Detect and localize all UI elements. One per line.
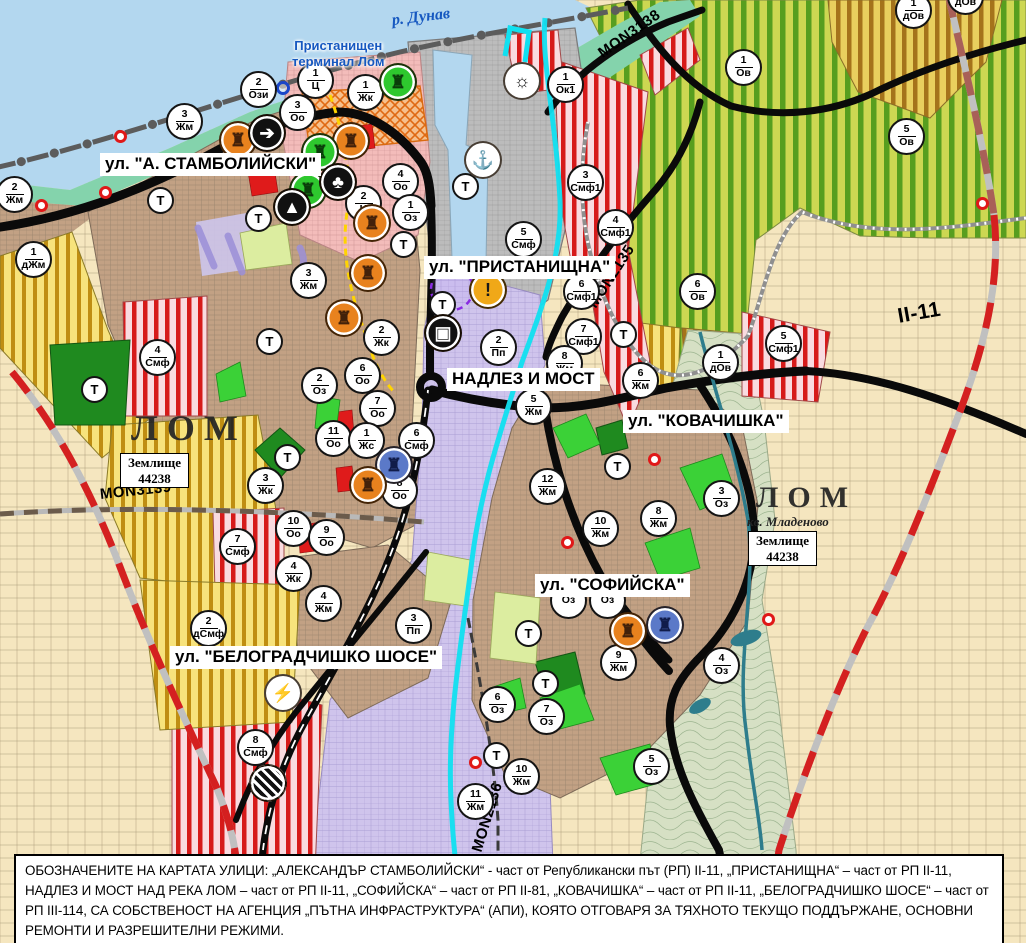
zone-number: 1 xyxy=(402,200,420,213)
zone-number: 1 xyxy=(358,428,376,441)
zone-number: 7 xyxy=(229,534,247,547)
zone-number: 11 xyxy=(466,789,485,802)
caption-segment: „КОВАЧИШКА“ xyxy=(553,883,643,898)
zone-code: Оо xyxy=(286,529,301,541)
zone-code: Смф1 xyxy=(600,228,630,240)
zone-number: 3 xyxy=(405,613,423,626)
zone-marker: 12 Жм xyxy=(529,468,566,505)
zone-number: 2 xyxy=(373,325,391,338)
zone-code: дЖм xyxy=(22,260,46,272)
caption-segment: „ПРИСТАНИЩНА“ xyxy=(727,863,839,878)
zone-marker: 2 Оз xyxy=(301,367,338,404)
zone-number: 2 xyxy=(200,616,218,629)
zone-marker: 7 Оз xyxy=(528,698,565,735)
street-label: ул. "БЕЛОГРАДЧИШКО ШОСЕ" xyxy=(170,646,442,669)
caption-segment: – част от РП II-11, xyxy=(236,883,352,898)
zone-code: Жк xyxy=(258,486,273,498)
transport-zone-marker: Т xyxy=(245,205,272,232)
zone-number: 1 xyxy=(905,0,923,11)
key-site-icon: ➔ xyxy=(248,114,286,152)
zone-marker: 10 Жм xyxy=(503,758,540,795)
zone-marker: 8 Жм xyxy=(640,500,677,537)
sun-site-icon: ☼ xyxy=(503,62,541,100)
monument-icon: ♜ xyxy=(349,254,387,292)
zone-number: 6 xyxy=(689,279,707,292)
zone-number: 9 xyxy=(318,525,336,538)
zone-number: 5 xyxy=(898,124,916,137)
zone-code: Жс xyxy=(359,441,374,453)
monument-icon: ♜ xyxy=(349,466,387,504)
transport-zone-marker: Т xyxy=(390,231,417,258)
zone-code: Жм xyxy=(6,195,23,207)
zone-code: Пп xyxy=(407,626,421,638)
zone-number: 4 xyxy=(149,345,167,358)
zone-code: Смф1 xyxy=(768,344,798,356)
zone-code: Оз xyxy=(313,386,326,398)
zone-marker: 1 Ов xyxy=(725,49,762,86)
zone-code: Ов xyxy=(899,137,914,149)
zone-marker: 1 Ок1 xyxy=(547,66,584,103)
zone-marker: 3 Жм xyxy=(290,262,327,299)
zone-marker: 6 Ов xyxy=(679,273,716,310)
transport-zone-marker: Т xyxy=(610,321,637,348)
road-point xyxy=(35,199,48,212)
zone-code: Ози xyxy=(249,90,269,102)
zone-number: 4 xyxy=(713,653,731,666)
zone-code: Ок1 xyxy=(556,85,575,97)
transport-zone-marker: Т xyxy=(256,328,283,355)
caption-segment: ОБОЗНАЧЕНИТЕ НА КАРТАТА УЛИЦИ: „АЛЕКСАНД… xyxy=(25,863,484,878)
caption-segment: „СОФИЙСКА“ xyxy=(353,883,437,898)
monument-icon: ♜ xyxy=(353,204,391,242)
monument-icon: ♜ xyxy=(646,606,684,644)
zone-marker: 10 Жм xyxy=(582,510,619,547)
zone-marker: 4 Жк xyxy=(275,555,312,592)
monument-icon: ♜ xyxy=(379,63,417,101)
zone-code: Ов xyxy=(736,68,751,80)
transport-zone-marker: Т xyxy=(515,620,542,647)
zone-code: Оз xyxy=(404,213,417,225)
zone-code: Жм xyxy=(467,802,484,814)
zone-code: Жк xyxy=(374,338,389,350)
zone-marker: 3 Смф1 xyxy=(567,164,604,201)
zoning-map[interactable]: р. ДунавПристанищен терминал Ломул. "А. … xyxy=(0,0,1026,943)
reference-point xyxy=(276,81,290,95)
road-point xyxy=(561,536,574,549)
zone-number: 8 xyxy=(650,506,668,519)
zone-number: 4 xyxy=(392,169,410,182)
zone-number: 6 xyxy=(489,692,507,705)
truck-terminal-icon: ▣ xyxy=(424,314,462,352)
zone-marker: 4 Смф1 xyxy=(597,209,634,246)
zone-number: 3 xyxy=(289,100,307,113)
monument-icon: ♜ xyxy=(325,299,363,337)
zone-marker: 6 Смф1 xyxy=(563,273,600,310)
zone-number: 5 xyxy=(515,227,533,240)
caption-segment: НАДЛЕЗ И МОСТ НАД РЕКА ЛОМ xyxy=(25,883,236,898)
zone-number: 2 xyxy=(490,335,508,348)
zone-marker: 5 Смф1 xyxy=(765,325,802,362)
zone-marker: 1 дОв xyxy=(702,344,739,381)
zone-marker: 10 Оо xyxy=(275,510,312,547)
zone-marker: 1 дЖм xyxy=(15,241,52,278)
zone-number: 10 xyxy=(591,516,611,529)
transport-zone-marker: Т xyxy=(532,670,559,697)
zone-number: 1 xyxy=(557,72,575,85)
zone-code: Смф xyxy=(243,748,267,760)
zone-marker: 2 Ози xyxy=(240,71,277,108)
caption-segment: „БЕЛОГРАДЧИШКО ШОСЕ“ xyxy=(760,883,931,898)
street-label: НАДЛЕЗ И МОСТ xyxy=(447,368,600,391)
zone-marker: 4 Жм xyxy=(305,585,342,622)
zone-number: 11 xyxy=(324,426,343,439)
zone-number: 2 xyxy=(6,182,24,195)
zone-code: Жм xyxy=(632,381,649,393)
caption-segment: - част от Републикански път (РП) II-11, xyxy=(484,863,727,878)
zone-code: Ц xyxy=(312,81,320,93)
port-terminal-label: Пристанищен терминал Лом xyxy=(292,38,384,69)
zone-marker: 5 Жм xyxy=(515,388,552,425)
zone-marker: 1 Оз xyxy=(392,194,429,231)
transport-zone-marker: Т xyxy=(274,444,301,471)
zone-marker: 3 Оз xyxy=(703,480,740,517)
zone-code: дСмф xyxy=(193,629,224,641)
zone-marker: 9 Оо xyxy=(308,519,345,556)
zone-marker: 5 Смф xyxy=(505,221,542,258)
people-site-icon: ♣ xyxy=(319,163,357,201)
zone-marker: 2 дСмф xyxy=(190,610,227,647)
zone-code: Оз xyxy=(562,595,575,607)
zone-number: 8 xyxy=(556,351,574,364)
zone-marker: 6 Жм xyxy=(622,362,659,399)
zone-number: 4 xyxy=(607,215,625,228)
zone-number: 6 xyxy=(632,368,650,381)
street-label: ул. "А. СТАМБОЛИЙСКИ" xyxy=(100,153,321,176)
zone-number: 6 xyxy=(408,428,426,441)
zone-code: Смф xyxy=(225,547,249,559)
transport-zone-marker: Т xyxy=(147,187,174,214)
caption-segment: – част от РП II-11, xyxy=(839,863,952,878)
zone-number: 3 xyxy=(300,268,318,281)
zone-marker: 2 Жк xyxy=(363,319,400,356)
zone-code: Жм xyxy=(176,122,193,134)
zone-code: Жм xyxy=(650,519,667,531)
zone-code: Оо xyxy=(393,182,408,194)
road-point xyxy=(762,613,775,626)
zone-code: Оз xyxy=(540,717,553,729)
street-label: ул. "ПРИСТАНИЩНА" xyxy=(424,256,615,279)
district-label: кв. Младеново xyxy=(747,515,829,530)
caption-segment: СА СОБСТВЕНОСТ НА АГЕНЦИЯ „ПЪТНА ИНФРАСТ… xyxy=(25,903,973,938)
zone-code: Жм xyxy=(539,487,556,499)
zone-code: Оо xyxy=(392,491,407,503)
zone-number: 12 xyxy=(538,474,558,487)
zone-code: Жк xyxy=(286,574,301,586)
zone-number: 3 xyxy=(176,109,194,122)
zone-number: 4 xyxy=(315,591,333,604)
zone-code: Оо xyxy=(319,538,334,550)
zone-code: Оз xyxy=(715,499,728,511)
zone-number: 6 xyxy=(573,279,591,292)
zone-number: 2 xyxy=(311,373,329,386)
city-label: ЛОМ xyxy=(131,408,247,449)
map-caption: ОБОЗНАЧЕНИТЕ НА КАРТАТА УЛИЦИ: „АЛЕКСАНД… xyxy=(14,854,1004,943)
zone-code: Смф xyxy=(511,240,535,252)
zone-number: 5 xyxy=(525,394,543,407)
cave-site-icon: ▲ xyxy=(273,188,311,226)
road-point xyxy=(469,756,482,769)
zone-marker: 11 Оо xyxy=(315,420,352,457)
road-point xyxy=(114,130,127,143)
zone-number: 1 xyxy=(735,55,753,68)
landplot-label: Землище 44238 xyxy=(748,531,817,566)
zone-marker: 6 Оо xyxy=(344,357,381,394)
zone-number: 2 xyxy=(250,77,268,90)
zone-code: Жк xyxy=(358,93,373,105)
zone-number: 7 xyxy=(369,396,387,409)
railway-crossing-icon xyxy=(249,764,287,802)
zone-code: Оз xyxy=(715,666,728,678)
zone-code: Жм xyxy=(525,407,542,419)
zone-number: 1 xyxy=(712,350,730,363)
zone-marker: 4 Смф xyxy=(139,339,176,376)
zone-number: 1 xyxy=(25,247,43,260)
anchor-port-icon: ⚓ xyxy=(464,141,502,179)
zone-marker: 2 Пп xyxy=(480,329,517,366)
zone-code: Жм xyxy=(513,777,530,789)
transport-zone-marker: Т xyxy=(604,453,631,480)
transport-zone-marker: Т xyxy=(483,742,510,769)
zone-number: 4 xyxy=(285,561,303,574)
lightning-icon: ⚡ xyxy=(264,674,302,712)
zone-code: Жм xyxy=(300,281,317,293)
zone-number: 6 xyxy=(354,363,372,376)
caption-segment: – част от РП II-11, xyxy=(643,883,759,898)
zone-code: Жм xyxy=(592,529,609,541)
zone-marker: 6 Оз xyxy=(479,686,516,723)
zone-code: Жм xyxy=(315,604,332,616)
zone-code: Оо xyxy=(326,439,341,451)
zone-code: Смф1 xyxy=(570,183,600,195)
zone-number: 7 xyxy=(538,704,556,717)
zone-code: Оз xyxy=(491,705,504,717)
zone-code: дОв xyxy=(955,0,976,9)
zone-number: 3 xyxy=(577,170,595,183)
landplot-label: Землище 44238 xyxy=(120,453,189,488)
zone-code: дОв xyxy=(710,363,731,375)
zone-code: Оо xyxy=(290,113,305,125)
zone-number: 7 xyxy=(575,324,593,337)
zone-marker: 3 Жм xyxy=(166,103,203,140)
zone-code: Пп xyxy=(492,348,506,360)
street-label: ул. "СОФИЙСКА" xyxy=(535,574,690,597)
zone-number: 5 xyxy=(775,331,793,344)
zone-marker: 3 Жк xyxy=(247,467,284,504)
zone-code: Смф xyxy=(145,358,169,370)
zone-marker: 8 Смф xyxy=(237,729,274,766)
zone-code: Смф1 xyxy=(566,292,596,304)
zone-marker: 3 Пп xyxy=(395,607,432,644)
city-label: ЛОМ xyxy=(756,481,857,516)
caption-segment: – част от РП II-81, xyxy=(436,883,553,898)
road-point xyxy=(648,453,661,466)
zone-code: Оо xyxy=(370,409,385,421)
zone-marker: 7 Смф xyxy=(219,528,256,565)
zone-marker: 11 Жм xyxy=(457,783,494,820)
street-label: ул. "КОВАЧИШКА" xyxy=(623,410,789,433)
monument-icon: ♜ xyxy=(609,612,647,650)
zone-number: 1 xyxy=(357,80,375,93)
zone-code: Жм xyxy=(610,663,627,675)
zone-code: Оо xyxy=(355,376,370,388)
zone-number: 5 xyxy=(643,754,661,767)
zone-marker: 4 Оз xyxy=(703,647,740,684)
zone-number: 3 xyxy=(257,473,275,486)
zone-number: 3 xyxy=(713,486,731,499)
zone-number: 8 xyxy=(247,735,265,748)
zone-number: 10 xyxy=(512,764,532,777)
road-point xyxy=(976,197,989,210)
zone-code: Ов xyxy=(690,292,705,304)
road-point xyxy=(99,186,112,199)
zone-code: Оз xyxy=(645,767,658,779)
zone-marker: 5 Оз xyxy=(633,748,670,785)
transport-zone-marker: Т xyxy=(81,376,108,403)
zone-code: дОв xyxy=(903,11,924,23)
zone-number: 1 xyxy=(307,68,325,81)
zone-number: 2 xyxy=(355,191,373,204)
zone-number: 9 xyxy=(610,650,628,663)
zone-code: Оз xyxy=(601,595,614,607)
zone-marker: 5 Ов xyxy=(888,118,925,155)
zone-number: 10 xyxy=(284,516,304,529)
